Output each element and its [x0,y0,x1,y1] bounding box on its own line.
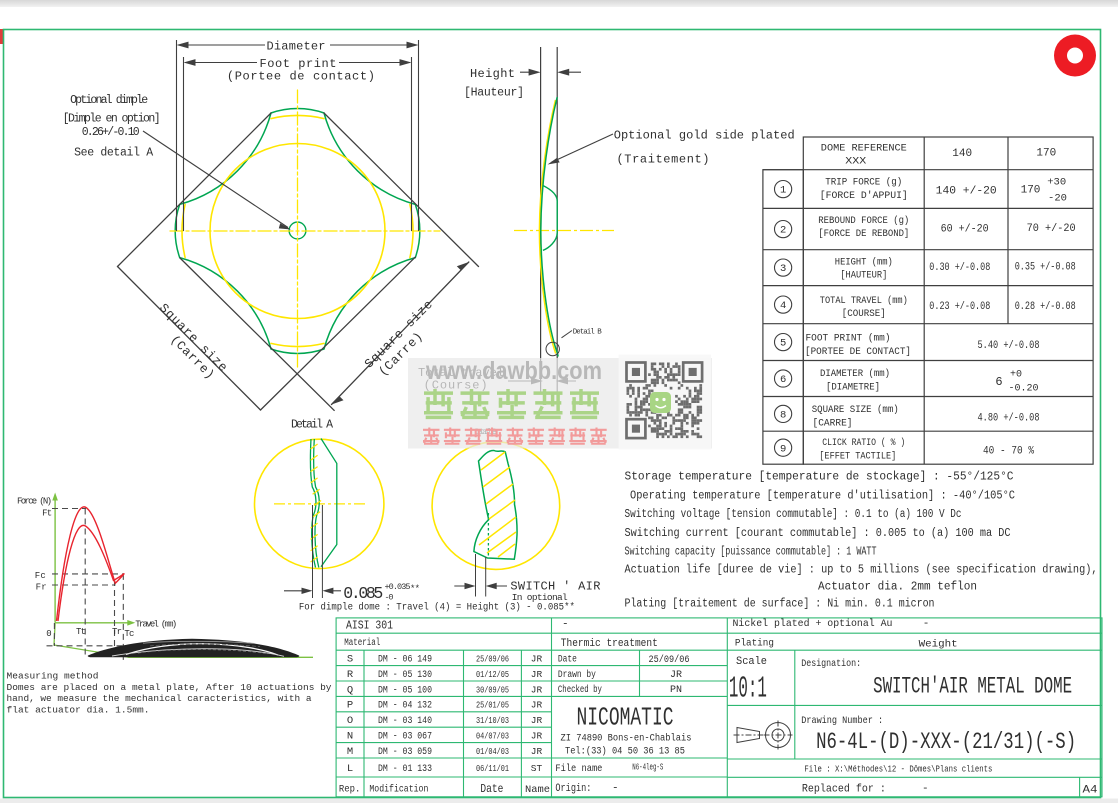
svg-text:-0.20: -0.20 [1008,383,1038,394]
svg-text:DM - 06 149: DM - 06 149 [378,654,432,666]
svg-text:FOOT PRINT (mm): FOOT PRINT (mm) [806,332,891,344]
svg-text:4.80 +/-0.08: 4.80 +/-0.08 [978,413,1040,425]
svg-text:Modification: Modification [369,784,428,796]
svg-text:6: 6 [780,374,786,386]
svg-text:[FORCE D'APPUI]: [FORCE D'APPUI] [820,190,908,202]
svg-text:25/09/06: 25/09/06 [476,654,509,665]
svg-text:[Hauteur]: [Hauteur] [464,87,524,100]
svg-text:Designation:: Designation: [801,658,861,670]
svg-text:0.35 +/-0.08: 0.35 +/-0.08 [1015,262,1076,274]
svg-text:JR: JR [531,715,543,726]
svg-text:-: - [923,618,930,630]
svg-text:P: P [347,700,353,712]
svg-text:0.28 +/-0.08: 0.28 +/-0.08 [1015,301,1076,313]
svg-text:Measuring method: Measuring method [7,671,99,682]
svg-text:140 +/-20: 140 +/-20 [936,185,997,197]
svg-text:8: 8 [780,410,786,422]
svg-text:Fr: Fr [36,582,47,592]
svg-text:DIAMETER (mm): DIAMETER (mm) [820,368,890,380]
svg-text:M: M [347,746,353,758]
svg-text:01/12/05: 01/12/05 [476,669,509,680]
svg-text:06/11/01: 06/11/01 [476,763,509,774]
svg-text:Actuation life [duree de vie]: Actuation life [duree de vie] : up to 5 … [625,564,1098,577]
svg-text:JR: JR [531,700,543,711]
svg-text:Scale: Scale [736,656,767,668]
svg-text:Switching current [courant com: Switching current [courant commutable] :… [625,527,1011,540]
svg-text:JR: JR [531,684,543,695]
svg-text:Name: Name [525,784,550,796]
svg-text:R: R [347,669,354,681]
svg-text:Fc: Fc [35,571,46,581]
svg-text:Tel:(33) 04 50 36 13 85: Tel:(33) 04 50 36 13 85 [565,746,685,758]
svg-text:[FORCE DE REBOND]: [FORCE DE REBOND] [818,228,909,240]
svg-text:See detail A: See detail A [74,147,153,160]
svg-text:-20: -20 [1048,192,1067,204]
svg-text:Tt: Tt [76,627,86,637]
svg-text:Origin:: Origin: [555,783,591,795]
svg-text:31/10/03: 31/10/03 [476,715,509,726]
svg-text:25/01/05: 25/01/05 [476,700,509,711]
svg-text:N6-4leg-S: N6-4leg-S [632,763,663,773]
svg-text:60 +/-20: 60 +/-20 [941,223,989,235]
svg-text:1: 1 [780,185,786,197]
svg-text:Plating: Plating [735,638,774,650]
svg-text:DM - 03 067: DM - 03 067 [378,731,432,743]
svg-text:Tr: Tr [112,627,122,637]
svg-text:170: 170 [1021,185,1041,197]
svg-text:Drawn by: Drawn by [558,669,596,681]
svg-text:-: - [562,619,569,631]
svg-text:-: - [612,783,619,795]
svg-text:www.dawbb.com: www.dawbb.com [425,357,602,385]
svg-text:N: N [347,731,353,743]
svg-text:DOME REFERENCE: DOME REFERENCE [821,144,907,155]
svg-text:Material: Material [344,637,380,649]
svg-text:70 +/-20: 70 +/-20 [1027,223,1076,235]
svg-text:5: 5 [780,338,786,350]
svg-text:10:1: 10:1 [729,672,767,707]
svg-text:O: O [347,715,353,727]
svg-text:Rep.: Rep. [339,784,361,796]
svg-text:Actuator dia. 2mm teflon: Actuator dia. 2mm teflon [818,581,977,594]
svg-text:5.40 +/-0.08: 5.40 +/-0.08 [978,340,1040,352]
svg-text:S: S [347,654,353,666]
svg-text:DM - 05 100: DM - 05 100 [378,684,432,696]
svg-text:4: 4 [780,300,786,312]
svg-text:SWITCH'AIR METAL DOME: SWITCH'AIR METAL DOME [873,674,1072,700]
svg-text:Domes are placed on a metal pl: Domes are placed on a metal plate, After… [7,682,332,693]
svg-text:N6-4L-(D)-XXX-(21/31)(-S): N6-4L-(D)-XXX-(21/31)(-S) [816,729,1076,756]
svg-text:6: 6 [995,375,1002,389]
svg-text:JR: JR [670,670,682,681]
svg-text:[Dimple en option]: [Dimple en option] [63,113,161,126]
svg-text:3: 3 [780,263,786,275]
svg-text:XXX: XXX [845,156,866,167]
svg-text:JR: JR [531,669,543,680]
svg-text:01/04/03: 01/04/03 [476,746,509,757]
svg-text:CLICK RATIO ( % ): CLICK RATIO ( % ) [822,437,905,449]
svg-text:2: 2 [780,225,786,237]
svg-text:25/09/06: 25/09/06 [649,654,690,666]
svg-text:[DIAMETRE]: [DIAMETRE] [826,382,880,394]
svg-text:**: ** [410,584,420,594]
svg-text:JR: JR [531,746,543,757]
svg-text:Switching voltage [tension com: Switching voltage [tension commutable] :… [625,508,962,521]
svg-text:[HAUTEUR]: [HAUTEUR] [840,269,887,281]
svg-text:Optional gold side plated: Optional gold side plated [614,129,795,143]
svg-text:0.30 +/-0.08: 0.30 +/-0.08 [929,262,990,274]
svg-text:[COURSE]: [COURSE] [842,308,886,320]
svg-text:[CARRE]: [CARRE] [813,418,853,430]
svg-text:Date: Date [480,782,503,796]
svg-text:TOTAL TRAVEL (mm): TOTAL TRAVEL (mm) [820,295,908,307]
svg-text:(Traitement): (Traitement) [617,153,710,167]
svg-text:170: 170 [1036,147,1056,159]
svg-text:JR: JR [531,731,543,742]
svg-text:+30: +30 [1047,176,1066,188]
svg-text:DM - 04 132: DM - 04 132 [378,700,432,712]
svg-text:hand, we measure the mechanica: hand, we measure the mechanical caracter… [7,693,312,704]
svg-text:Detail B: Detail B [573,329,602,337]
svg-text:Checked by: Checked by [558,684,602,696]
svg-text:Plating [traitement de surface: Plating [traitement de surface] : Ni min… [625,598,935,611]
svg-text:JR: JR [531,654,543,665]
svg-text:DM - 03 059: DM - 03 059 [378,746,432,758]
svg-text:Weight: Weight [919,638,958,650]
svg-text:0.23 +/-0.08: 0.23 +/-0.08 [929,301,990,313]
svg-text:DM - 01 133: DM - 01 133 [378,763,432,775]
svg-text:DM - 03 140: DM - 03 140 [378,715,432,727]
svg-text:Foot print: Foot print [260,57,337,71]
svg-text:TRIP FORCE (g): TRIP FORCE (g) [825,176,902,188]
svg-text:9: 9 [780,443,786,455]
svg-text:REBOUND FORCE (g): REBOUND FORCE (g) [818,215,909,227]
svg-text:In optional: In optional [512,592,568,603]
svg-text:Q: Q [347,684,353,696]
svg-text:ZI 74890 Bons-en-Chablais: ZI 74890 Bons-en-Chablais [561,733,692,745]
svg-text:Detail A: Detail A [291,419,333,432]
svg-text:AISI 301: AISI 301 [346,619,393,633]
svg-text:Date: Date [558,655,577,666]
svg-text:For dimple dome : Travel (4) =: For dimple dome : Travel (4) = Height (3… [299,602,575,614]
svg-text:NICOMATIC: NICOMATIC [577,704,674,733]
svg-text:[PORTEE DE CONTACT]: [PORTEE DE CONTACT] [805,346,911,358]
svg-text:Ft: Ft [42,509,52,519]
svg-text:Replaced for :: Replaced for : [802,783,886,795]
svg-text:Storage temperature [temperatu: Storage temperature [temperature de stoc… [625,471,1014,484]
svg-text:04/07/03: 04/07/03 [476,731,509,742]
svg-text:Nickel plated + optional Au: Nickel plated + optional Au [733,618,893,630]
svg-text:Optional dimple: Optional dimple [70,94,148,107]
svg-text:A4: A4 [1083,785,1098,797]
svg-text:40 - 70 %: 40 - 70 % [983,446,1034,458]
svg-text:ST: ST [531,763,543,774]
svg-text:+0: +0 [1010,370,1022,381]
svg-text:SQUARE SIZE (mm): SQUARE SIZE (mm) [812,404,899,416]
svg-text:(Portee de contact): (Portee de contact) [227,70,375,84]
svg-text:Force (N): Force (N) [17,497,52,507]
svg-text:0: 0 [46,629,51,639]
svg-text:30/09/05: 30/09/05 [476,684,509,695]
svg-text:Switching capacity [puissance: Switching capacity [puissance commutable… [625,546,877,559]
svg-text:0.26+/-0.10: 0.26+/-0.10 [82,126,140,139]
svg-text:Diameter: Diameter [267,40,326,54]
svg-text:PN: PN [670,685,682,696]
svg-text:File name: File name [555,763,602,775]
svg-text:HEIGHT (mm): HEIGHT (mm) [835,257,893,269]
svg-text:Travel (mm): Travel (mm) [135,619,177,629]
svg-text:Operating temperature [tempera: Operating temperature [temperature d'uti… [630,490,1015,503]
svg-text:File : X:\Méthodes\12 - Dômes: File : X:\Méthodes\12 - Dômes\Plans clie… [804,765,992,775]
svg-text:Tc: Tc [124,629,134,639]
svg-text:140: 140 [952,148,972,160]
svg-text:[EFFET TACTILE]: [EFFET TACTILE] [819,450,896,462]
svg-text:0.085: 0.085 [343,584,383,603]
svg-text:Thermic treatment: Thermic treatment [561,638,658,650]
svg-text:-: - [922,783,929,795]
svg-text:Drawing Number :: Drawing Number : [801,715,883,727]
svg-text:Height: Height [470,67,515,81]
svg-text:+0.035: +0.035 [385,582,411,592]
svg-text:L: L [347,763,353,775]
svg-text:DM - 05 130: DM - 05 130 [378,669,432,681]
svg-text:flat actuator dia. 1.5mm.: flat actuator dia. 1.5mm. [7,704,150,715]
